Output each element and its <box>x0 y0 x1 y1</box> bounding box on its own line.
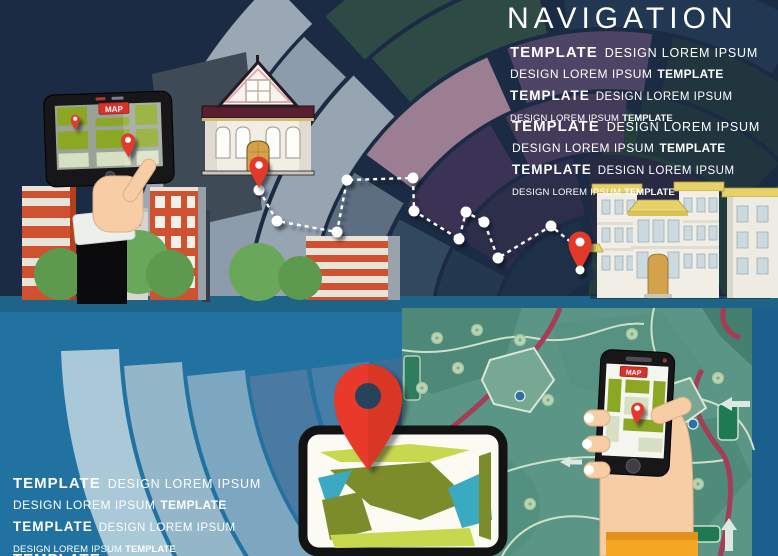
lorem-text-block-right-upper: TEMPLATEDESIGN LOREM IPSUM DESIGN LOREM … <box>510 45 758 125</box>
lorem-regular: DESIGN LOREM IPSUM <box>512 187 621 198</box>
tablet-device: MAP <box>43 91 174 187</box>
phone-map-badge-label: MAP <box>626 369 642 377</box>
lorem-line: DESIGN LOREM IPSUMTEMPLATE <box>510 66 758 82</box>
right-edge-strip <box>752 308 778 556</box>
lorem-line: DESIGN LOREM IPSUMTEMPLATE <box>512 183 760 199</box>
lorem-regular: DESIGN LOREM IPSUM <box>598 165 735 177</box>
sleeve-cuff-stripe <box>606 532 698 540</box>
lorem-regular: DESIGN LOREM IPSUM <box>607 120 760 134</box>
poi-dot <box>515 391 525 401</box>
tree-icon <box>146 250 194 298</box>
lorem-text-block-right-lower: TEMPLATEDESIGN LOREM IPSUM DESIGN LOREM … <box>512 119 760 199</box>
lorem-bold: TEMPLATE <box>13 519 93 534</box>
lorem-bold: TEMPLATE <box>13 475 101 492</box>
lorem-regular: DESIGN LOREM IPSUM <box>510 67 652 81</box>
lorem-regular: DESIGN LOREM IPSUM <box>605 46 758 60</box>
lorem-line: TEMPLATEDESIGN LOREM IPSUM <box>510 88 758 104</box>
framed-map-card <box>303 430 503 552</box>
lorem-line: TEMPLATEDESIGN LOREM IPSUM <box>13 519 261 535</box>
mansion-building <box>583 182 778 299</box>
lorem-bold: TEMPLATE <box>510 88 590 103</box>
lorem-line: DESIGN LOREM IPSUMTEMPLATE <box>13 497 261 513</box>
tree-icon <box>278 256 322 300</box>
lorem-regular: DESIGN LOREM IPSUM <box>99 522 236 534</box>
lorem-bold: TEMPLATE <box>624 187 675 198</box>
lorem-regular: DESIGN LOREM IPSUM <box>108 477 261 491</box>
lorem-bold: TEMPLATE <box>160 498 226 512</box>
poi-dot <box>688 419 698 429</box>
lorem-bold: TEMPLATE <box>512 118 600 135</box>
lorem-text-block-bottom-left: TEMPLATEDESIGN LOREM IPSUM DESIGN LOREM … <box>13 476 261 556</box>
lorem-bold: TEMPLATE <box>512 162 592 177</box>
tree-icon <box>229 243 287 301</box>
home-button <box>626 459 641 474</box>
lorem-bold: TEMPLATE <box>510 44 598 61</box>
lorem-bold: TEMPLATE <box>659 141 725 155</box>
lorem-line: TEMPLATEDESIGN LOREM IPSUM <box>510 45 758 61</box>
page-title: NAVIGATION <box>507 2 738 36</box>
lorem-line: DESIGN LOREM IPSUMTEMPLATE <box>512 140 760 156</box>
lorem-line-partial: TEMPLATE <box>13 551 101 556</box>
orange-striped-building-2 <box>306 236 400 300</box>
lorem-regular: DESIGN LOREM IPSUM <box>512 141 654 155</box>
lorem-bold: TEMPLATE <box>125 544 176 555</box>
lorem-regular: DESIGN LOREM IPSUM <box>596 91 733 103</box>
lorem-line: TEMPLATEDESIGN LOREM IPSUM <box>512 162 760 178</box>
navigation-infographic: MAP MAP <box>0 0 778 556</box>
lorem-line: TEMPLATEDESIGN LOREM IPSUM <box>13 476 261 492</box>
lorem-line: TEMPLATEDESIGN LOREM IPSUM <box>512 119 760 135</box>
tablet-map-badge-label: MAP <box>105 105 124 115</box>
lorem-bold: TEMPLATE <box>657 67 723 81</box>
lorem-regular: DESIGN LOREM IPSUM <box>13 498 155 512</box>
